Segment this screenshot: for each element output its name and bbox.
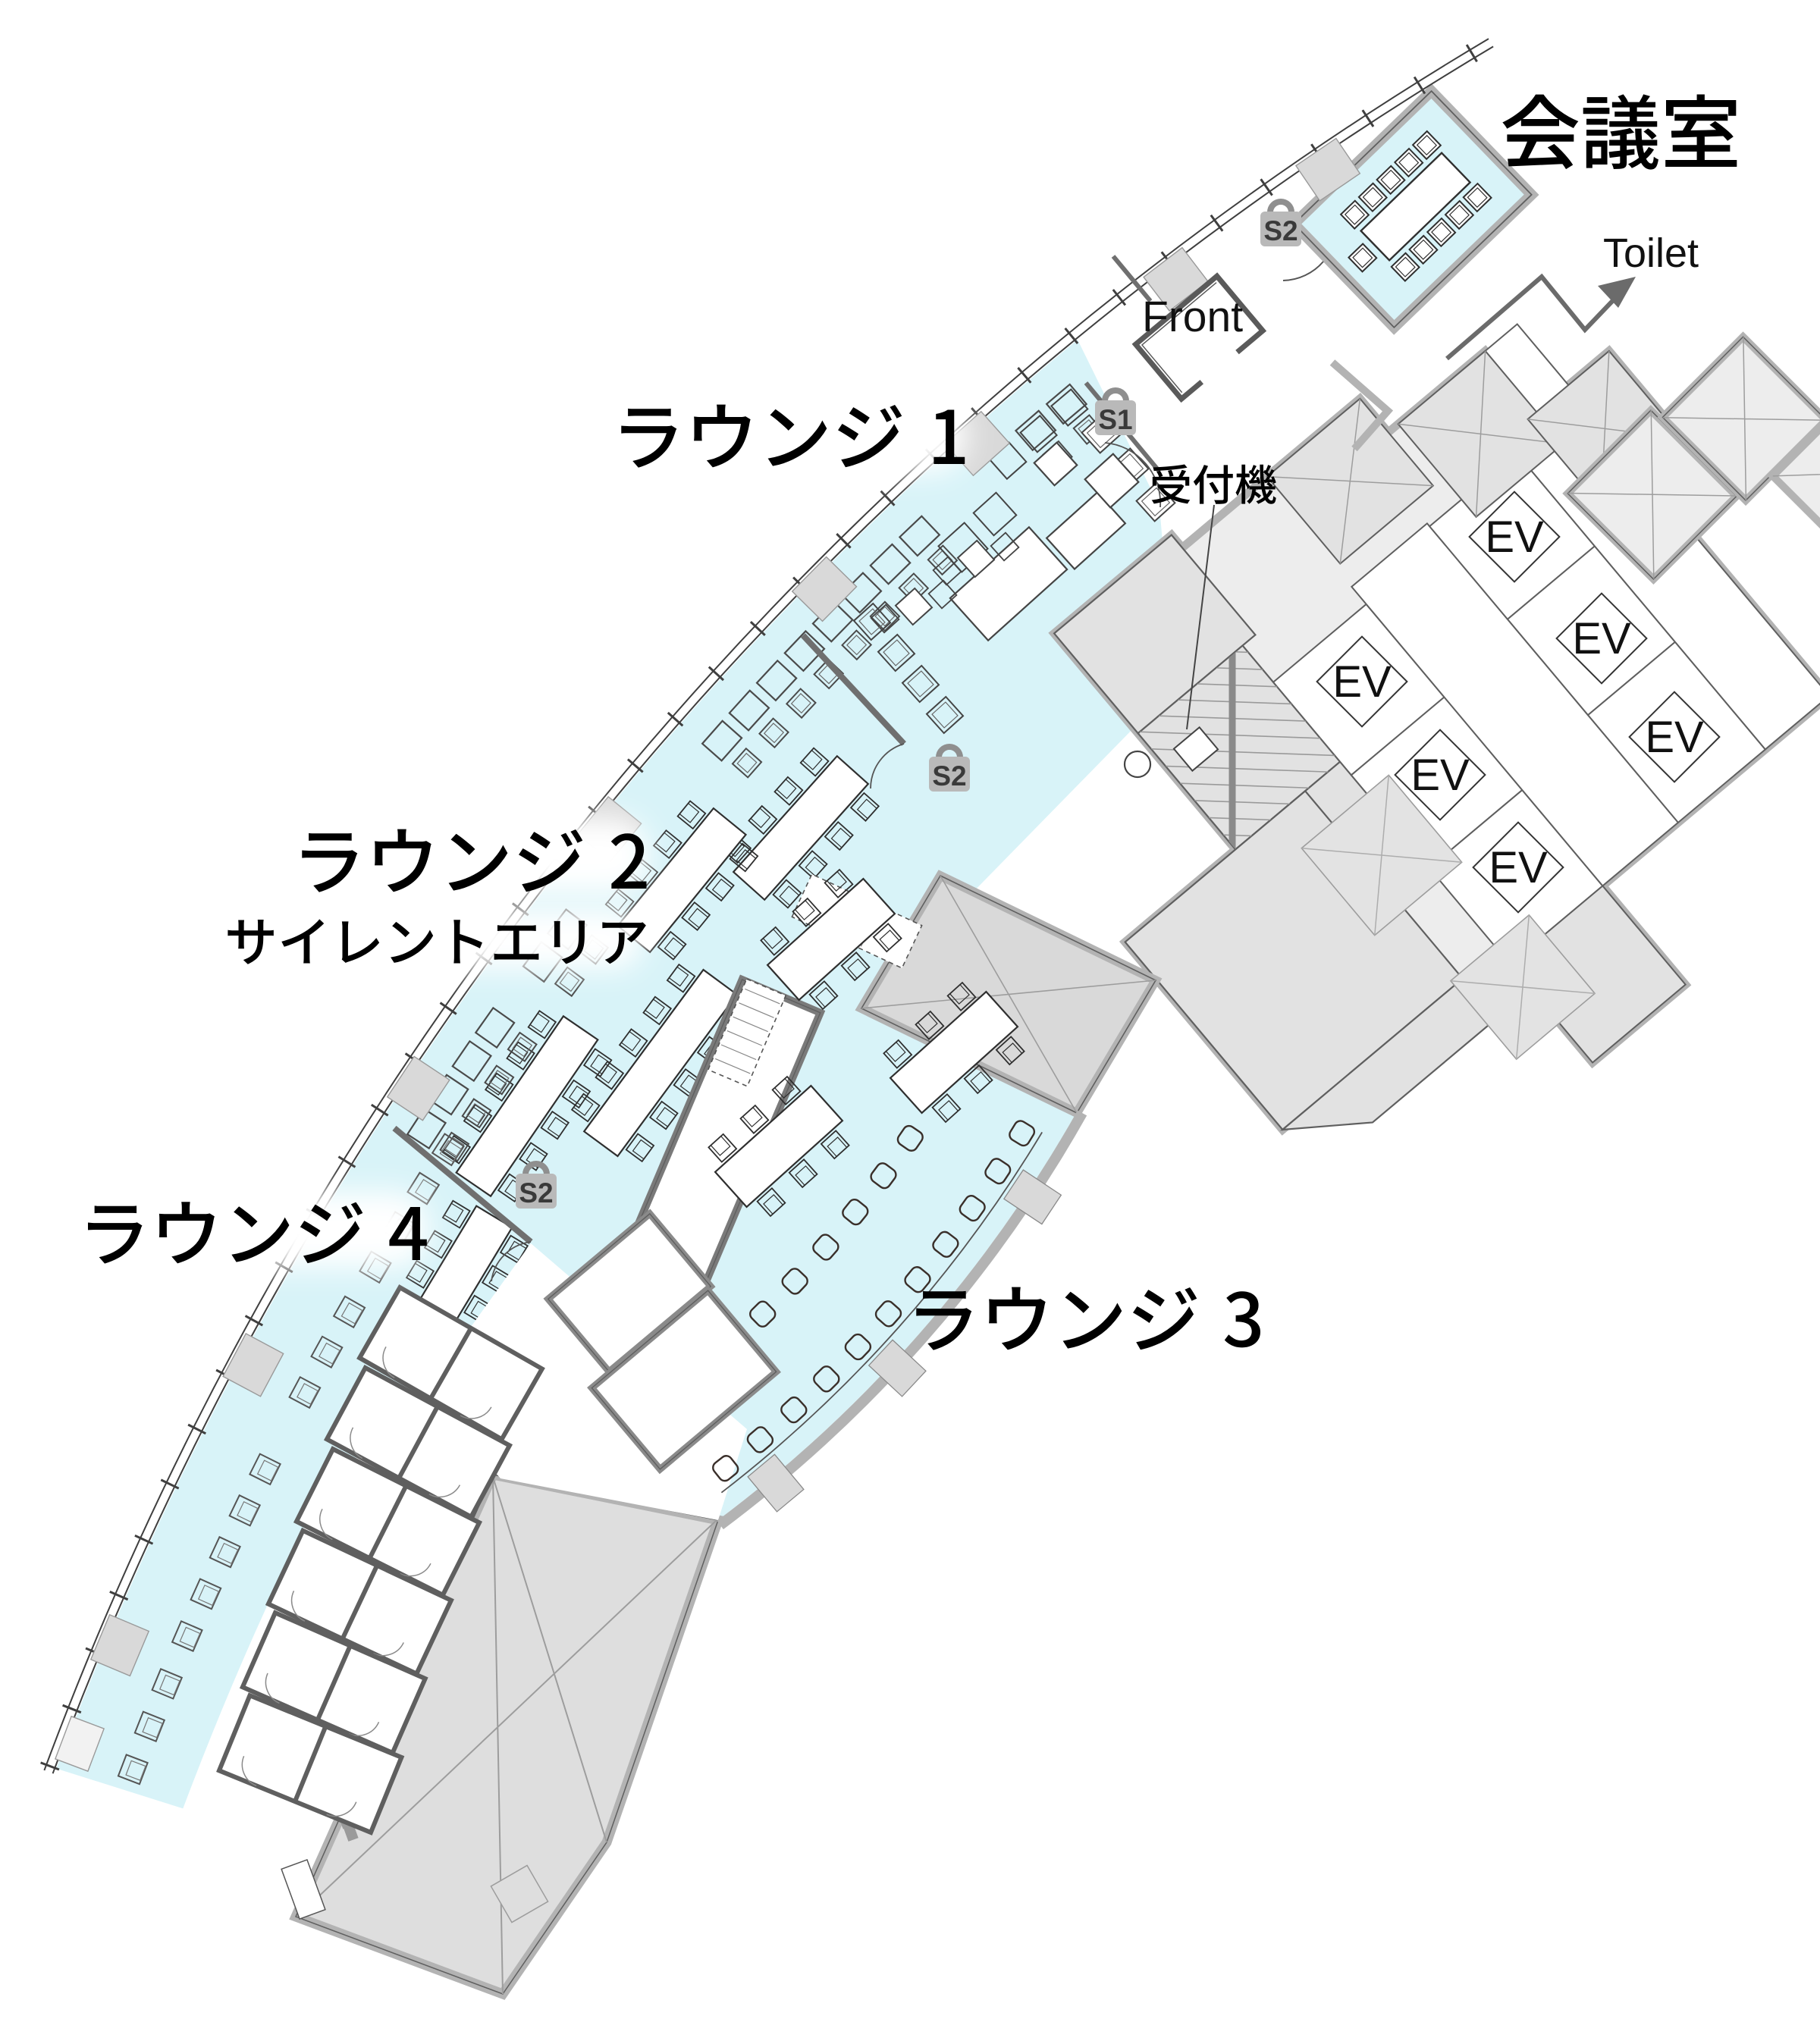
svg-text:Front: Front (1142, 293, 1243, 341)
svg-text:S2: S2 (932, 760, 966, 792)
svg-text:EV: EV (1410, 751, 1470, 800)
svg-text:EV: EV (1485, 513, 1544, 562)
svg-text:EV: EV (1332, 657, 1392, 707)
svg-text:EV: EV (1572, 614, 1631, 663)
svg-text:EV: EV (1489, 843, 1548, 892)
svg-text:S2: S2 (1263, 215, 1298, 246)
svg-text:Toilet: Toilet (1603, 230, 1699, 276)
svg-text:S2: S2 (519, 1177, 553, 1209)
svg-text:EV: EV (1645, 713, 1704, 762)
svg-text:S1: S1 (1098, 404, 1132, 435)
